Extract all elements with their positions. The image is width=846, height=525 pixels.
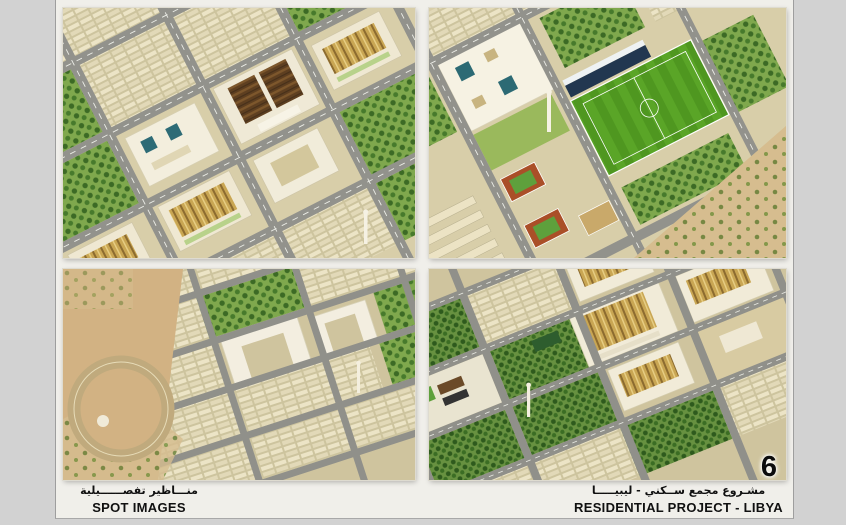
aerial-render-bottom-left xyxy=(63,269,415,480)
aerial-render-bottom-right: 6 xyxy=(429,269,786,480)
caption-left-arabic: منـــاظير تفصــــــيلية xyxy=(64,484,214,497)
caption-right-arabic: مشـروع مجمع ســكني - ليبيـــــا xyxy=(571,484,786,497)
presentation-canvas: 6 منـــاظير تفصــــــيلية SPOT IMAGES مش… xyxy=(0,0,846,525)
bottom-right-render-graphic xyxy=(429,269,786,480)
caption-left-english: SPOT IMAGES xyxy=(64,500,214,515)
roundabout xyxy=(74,362,168,456)
aerial-render-top-right xyxy=(429,8,786,258)
page-number: 6 xyxy=(761,453,777,480)
slide: 6 منـــاظير تفصــــــيلية SPOT IMAGES مش… xyxy=(55,0,794,519)
aerial-render-top-left xyxy=(63,8,415,258)
caption-left: منـــاظير تفصــــــيلية SPOT IMAGES xyxy=(64,484,214,515)
top-left-render-graphic xyxy=(63,8,415,258)
caption-right: مشـروع مجمع ســكني - ليبيـــــا RESIDENT… xyxy=(571,484,786,515)
caption-right-english: RESIDENTIAL PROJECT - LIBYA xyxy=(571,500,786,515)
top-right-render-graphic xyxy=(429,8,786,258)
bottom-left-render-graphic xyxy=(63,269,415,480)
minaret-icon xyxy=(546,89,552,132)
